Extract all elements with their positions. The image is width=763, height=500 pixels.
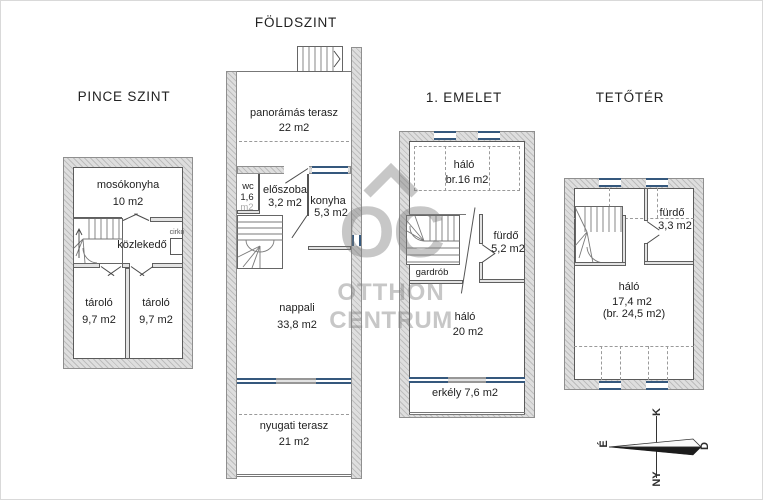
wall <box>125 268 130 359</box>
wall-pier <box>276 378 316 384</box>
title-pince-szint: PINCE SZINT <box>78 89 171 104</box>
window <box>646 381 668 390</box>
dashed-line <box>657 188 658 218</box>
window <box>478 131 500 140</box>
window <box>646 178 668 187</box>
wall <box>479 279 525 283</box>
room-area-halo: 17,4 m2 <box>612 296 652 308</box>
staircase <box>237 215 283 269</box>
room-area-konyha: 5,3 m2 <box>314 207 348 219</box>
room-label-mosokonyha: mosókonyha <box>97 179 159 191</box>
compass-label-south: D <box>699 442 711 450</box>
room-area-furdo: 3,3 m2 <box>658 220 692 232</box>
wall <box>152 263 183 268</box>
wall <box>622 215 626 265</box>
wall <box>409 280 463 284</box>
window <box>312 166 348 174</box>
wall <box>307 174 309 216</box>
wall <box>308 246 351 250</box>
knee-wall-dashed <box>574 346 694 347</box>
room-area-halo-br: (br. 24,5 m2) <box>603 308 665 320</box>
room-label-erkely: erkély 7,6 m2 <box>432 387 498 399</box>
room-label-halo: háló <box>619 281 640 293</box>
wall-pier <box>448 377 486 383</box>
wall <box>644 261 694 265</box>
balcony-edge <box>409 412 525 415</box>
room-label-nappali: nappali <box>279 302 314 314</box>
window <box>352 235 361 246</box>
room-label-furdo: fürdő <box>493 230 518 242</box>
room-area-tarolo-left: 9,7 m2 <box>82 314 116 326</box>
room-unit-wc: m2 <box>240 202 253 213</box>
room-label-tarolo-left: tároló <box>85 297 113 309</box>
floorplan-sheet: PINCE SZINT FÖLDSZINT 1. EMELET TETŐTÉR … <box>0 0 763 500</box>
terrace-dashed-line <box>239 414 349 415</box>
room-label-kozlekedo: közlekedő <box>117 239 167 251</box>
window <box>434 131 456 140</box>
room-area-eloszoba: 3,2 m2 <box>268 197 302 209</box>
wall <box>258 174 260 212</box>
title-tetoter: TETŐTÉR <box>596 90 665 105</box>
staircase <box>406 215 460 265</box>
compass-needle <box>601 429 711 465</box>
terrace-dashed-line <box>239 141 349 142</box>
dormer-dashed <box>648 346 668 380</box>
boiler-box <box>170 238 183 255</box>
compass-label-east: K <box>651 408 663 416</box>
dashed-line <box>489 146 490 191</box>
compass-label-west: NY <box>651 471 663 486</box>
room-label-tarolo-right: tároló <box>142 297 170 309</box>
room-label-panoramas-terasz: panorámás terasz <box>250 107 338 119</box>
compass-label-north: É <box>598 440 610 447</box>
wall <box>150 217 183 222</box>
room-area-furdo: 5,2 m2 <box>491 243 525 255</box>
room-label-nyugati-terasz: nyugati terasz <box>260 420 328 432</box>
dormer-dashed <box>601 346 621 380</box>
room-area-halo-felso: br.16 m2 <box>446 174 489 186</box>
room-label-furdo: fürdő <box>659 207 684 219</box>
window <box>599 381 621 390</box>
room-label-wc: wc <box>242 181 254 192</box>
staircase <box>575 206 623 264</box>
room-label-halo-also: háló <box>455 311 476 323</box>
wall <box>574 262 626 266</box>
staircase <box>73 218 123 264</box>
window <box>599 178 621 187</box>
outer-wall-left <box>226 71 237 479</box>
terrace-edge <box>237 474 351 477</box>
room-area-nyugati-terasz: 21 m2 <box>279 436 310 448</box>
room-label-gardrob: gardrób <box>416 267 449 278</box>
room-label-eloszoba: előszoba <box>263 184 307 196</box>
wall <box>479 214 483 244</box>
exterior-staircase <box>297 46 343 72</box>
room-area-tarolo-right: 9,7 m2 <box>139 314 173 326</box>
room-label-cirko: cirkó <box>170 229 185 236</box>
outer-wall-right <box>351 47 362 479</box>
room-area-nappali: 33,8 m2 <box>277 319 317 331</box>
room-area-panoramas-terasz: 22 m2 <box>279 122 310 134</box>
title-emelet: 1. EMELET <box>426 90 502 105</box>
room-area-mosokonyha: 10 m2 <box>113 196 144 208</box>
room-label-halo-felso: háló <box>454 159 475 171</box>
wall <box>644 188 648 221</box>
room-label-konyha: konyha <box>310 195 345 207</box>
title-foldszint: FÖLDSZINT <box>255 15 337 30</box>
room-area-halo-also: 20 m2 <box>453 326 484 338</box>
